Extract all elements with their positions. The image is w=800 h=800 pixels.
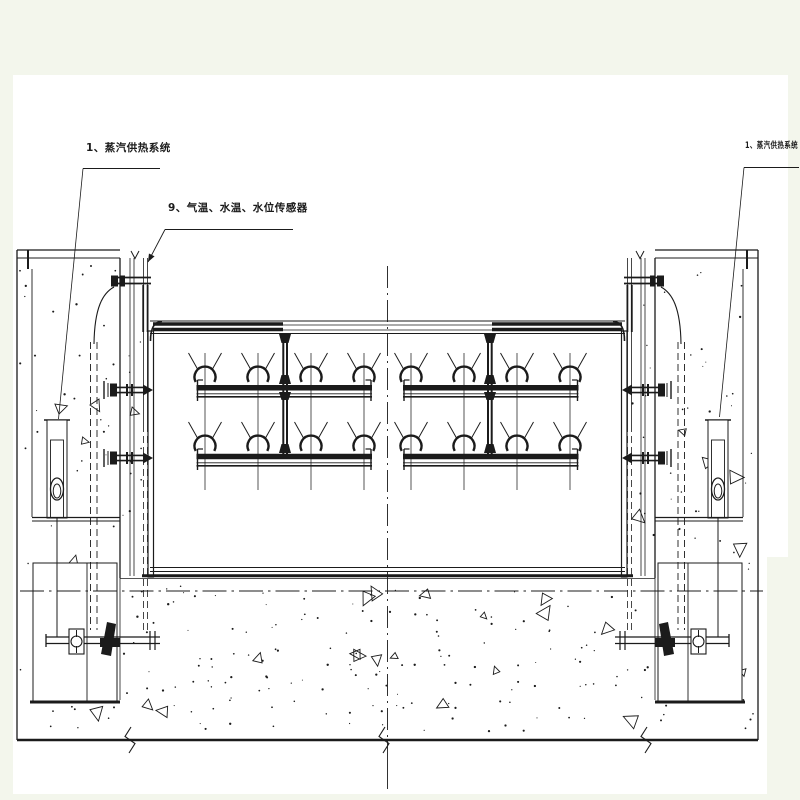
speckle-dot (534, 685, 536, 687)
speckle-dot (660, 719, 662, 721)
speckle-dot (108, 425, 109, 426)
speckle-dot (705, 362, 706, 363)
label-steam-heating-system-left: 1、蒸汽供热系统 (86, 141, 171, 154)
speckle-dot (272, 627, 273, 628)
speckle-dot (584, 718, 585, 719)
speckle-dot (414, 613, 416, 615)
speckle-dot (424, 730, 425, 731)
speckle-dot (275, 624, 276, 625)
speckle-dot (375, 673, 377, 675)
speckle-dot (381, 710, 383, 712)
speckle-dot (71, 706, 73, 708)
speckle-dot (248, 654, 249, 655)
speckle-dot (743, 699, 745, 701)
speckle-dot (100, 419, 101, 420)
speckle-dot (368, 688, 369, 689)
speckle-dot (454, 707, 456, 709)
speckle-dot (451, 717, 453, 719)
speckle-dot (401, 664, 403, 666)
speckle-dot (271, 706, 273, 708)
speckle-dot (748, 569, 749, 570)
speckle-dot (230, 697, 231, 698)
speckle-dot (52, 311, 54, 313)
speckle-dot (225, 682, 227, 684)
speckle-dot (205, 728, 207, 730)
speckle-dot (581, 647, 583, 649)
speckle-dot (702, 366, 703, 367)
speckle-dot (327, 664, 329, 666)
label-steam-heating-system-right: 1、蒸汽供热系统 (745, 140, 798, 151)
speckle-dot (81, 460, 83, 462)
speckle-dot (166, 588, 167, 589)
speckle-dot (90, 265, 92, 267)
speckle-dot (198, 665, 200, 667)
speckle-dot (140, 341, 141, 342)
speckle-dot (268, 688, 269, 689)
speckle-dot (73, 398, 75, 400)
steam-heater-cylinder (44, 420, 70, 518)
speckle-dot (303, 598, 305, 600)
speckle-dot (635, 609, 637, 611)
speckle-dot (549, 629, 551, 631)
speckle-dot (112, 363, 114, 365)
speckle-dot (162, 689, 164, 691)
speckle-dot (523, 620, 525, 622)
speckle-dot (25, 447, 27, 449)
margin-band-right-lower (767, 557, 800, 800)
speckle-dot (616, 676, 617, 677)
speckle-dot (752, 713, 754, 715)
speckle-dot (448, 655, 450, 657)
speckle-dot (682, 409, 684, 411)
speckle-dot (211, 686, 212, 687)
speckle-dot (517, 664, 519, 666)
speckle-dot (194, 595, 196, 597)
speckle-dot (444, 664, 446, 666)
speckle-dot (615, 685, 617, 687)
speckle-dot (106, 454, 107, 455)
speckle-dot (379, 671, 380, 672)
speckle-dot (266, 604, 267, 605)
speckle-dot (749, 718, 751, 720)
speckle-dot (484, 642, 485, 643)
speckle-dot (697, 274, 699, 276)
speckle-dot (643, 437, 645, 439)
speckle-dot (731, 405, 732, 406)
speckle-dot (27, 563, 28, 564)
speckle-dot (82, 274, 84, 276)
speckle-dot (719, 540, 721, 542)
speckle-dot (19, 362, 21, 364)
speckle-dot (567, 606, 569, 608)
speckle-dot (233, 653, 235, 655)
speckle-dot (726, 395, 728, 397)
speckle-dot (741, 285, 743, 287)
speckle-dot (230, 676, 232, 678)
speckle-dot (24, 296, 25, 297)
speckle-dot (212, 708, 214, 710)
speckle-dot (326, 713, 327, 714)
speckle-dot (304, 613, 306, 615)
speckle-dot (749, 563, 750, 564)
speckle-dot (74, 708, 76, 710)
speckle-dot (128, 355, 129, 356)
speckle-dot (302, 680, 303, 681)
engineering-drawing-canvas: 1、蒸汽供热系统 9、气温、水温、水位传感器 1、蒸汽供热系统 (0, 0, 800, 800)
speckle-dot (122, 515, 123, 516)
speckle-dot (414, 664, 416, 666)
speckle-dot (349, 712, 351, 714)
speckle-dot (695, 510, 697, 512)
speckle-dot (191, 711, 193, 713)
speckle-dot (173, 601, 175, 603)
speckle-dot (113, 525, 115, 527)
speckle-dot (167, 603, 169, 605)
speckle-dot (153, 622, 155, 624)
speckle-dot (126, 692, 128, 694)
speckle-dot (291, 682, 292, 683)
speckle-dot (266, 676, 268, 678)
speckle-dot (208, 680, 209, 681)
speckle-dot (25, 285, 27, 287)
speckle-dot (123, 653, 125, 655)
speckle-dot (517, 681, 519, 683)
speckle-dot (650, 367, 651, 368)
speckle-dot (140, 448, 142, 450)
speckle-dot (246, 631, 247, 632)
speckle-dot (50, 726, 52, 728)
speckle-dot (355, 674, 357, 676)
speckle-dot (575, 659, 576, 660)
speckle-dot (330, 648, 332, 650)
speckle-dot (644, 669, 646, 671)
margin-band-bottom (13, 794, 767, 800)
speckle-dot (438, 649, 440, 651)
speckle-dot (585, 684, 586, 685)
speckle-dot (670, 472, 672, 474)
speckle-dot (511, 689, 512, 690)
speckle-dot (103, 431, 105, 433)
speckle-dot (34, 355, 36, 357)
speckle-dot (558, 707, 560, 709)
speckle-dot (52, 710, 54, 712)
speckle-dot (499, 700, 501, 702)
speckle-dot (504, 724, 506, 726)
speckle-dot (349, 664, 350, 665)
speckle-dot (210, 658, 212, 660)
speckle-dot (751, 453, 752, 454)
speckle-dot (419, 597, 421, 599)
speckle-dot (199, 658, 200, 659)
speckle-dot (372, 705, 373, 706)
speckle-dot (273, 725, 275, 727)
speckle-dot (229, 723, 231, 725)
speckle-dot (700, 272, 701, 273)
speckle-dot (370, 620, 372, 622)
speckle-dot (200, 723, 201, 724)
speckle-dot (212, 666, 213, 667)
speckle-dot (187, 630, 188, 631)
speckle-dot (411, 702, 413, 704)
speckle-dot (362, 610, 364, 612)
speckle-dot (646, 345, 647, 346)
speckle-dot (681, 491, 683, 493)
speckle-dot (440, 656, 441, 657)
speckle-dot (739, 316, 741, 318)
speckle-dot (491, 616, 493, 618)
speckle-dot (132, 596, 134, 598)
speckle-dot (641, 697, 642, 698)
speckle-dot (350, 669, 351, 670)
speckle-dot (262, 592, 263, 593)
speckle-dot (232, 628, 234, 630)
speckle-dot (106, 378, 108, 380)
speckle-dot (690, 354, 691, 355)
speckle-dot (745, 483, 746, 484)
speckle-dot (275, 648, 277, 650)
speckle-dot (175, 686, 176, 687)
speckle-dot (146, 631, 148, 633)
speckle-dot (687, 407, 688, 408)
speckle-dot (215, 595, 216, 596)
speckle-dot (19, 270, 21, 272)
speckle-dot (396, 705, 397, 706)
speckle-dot (140, 479, 142, 481)
speckle-dot (594, 632, 596, 634)
speckle-dot (643, 305, 644, 306)
speckle-dot (694, 538, 695, 539)
speckle-dot (346, 632, 347, 633)
speckle-dot (352, 604, 353, 605)
speckle-dot (514, 591, 515, 592)
speckle-dot (277, 650, 279, 652)
speckle-dot (611, 596, 613, 598)
speckle-dot (732, 393, 734, 395)
speckle-dot (745, 727, 747, 729)
speckle-dot (580, 686, 581, 687)
speckle-dot (402, 707, 404, 709)
speckle-dot (579, 661, 581, 663)
speckle-dot (663, 714, 664, 715)
speckle-dot (438, 635, 440, 637)
speckle-dot (448, 703, 449, 704)
speckle-dot (523, 730, 525, 732)
speckle-dot (436, 619, 438, 621)
speckle-dot (550, 648, 551, 649)
speckle-dot (113, 706, 115, 708)
speckle-dot (258, 690, 260, 692)
speckle-dot (454, 682, 456, 684)
speckle-dot (51, 525, 52, 526)
speckle-dot (509, 701, 511, 703)
speckle-dot (294, 701, 296, 703)
speckle-dot (665, 705, 667, 707)
speckle-dot (586, 644, 587, 645)
speckle-dot (709, 410, 711, 412)
speckle-dot (36, 410, 37, 411)
speckle-dot (148, 671, 149, 672)
speckle-dot (594, 650, 595, 651)
speckle-dot (382, 724, 383, 725)
speckle-dot (701, 348, 703, 350)
speckle-dot (593, 683, 595, 685)
speckle-dot (229, 699, 231, 701)
drain-valve (69, 629, 84, 654)
speckle-dot (568, 717, 570, 719)
speckle-dot (77, 727, 78, 728)
speckle-dot (355, 653, 357, 655)
speckle-dot (647, 666, 649, 668)
speckle-dot (317, 617, 319, 619)
speckle-dot (397, 694, 398, 695)
speckle-dot (79, 355, 81, 357)
speckle-dot (389, 611, 391, 613)
speckle-dot (436, 631, 438, 633)
speckle-dot (671, 499, 672, 500)
speckle-dot (103, 325, 105, 327)
speckle-dot (192, 681, 194, 683)
margin-band-top (0, 0, 800, 75)
speckle-dot (488, 730, 490, 732)
speckle-dot (426, 614, 428, 616)
speckle-dot (733, 552, 735, 554)
speckle-dot (136, 616, 138, 618)
speckle-dot (474, 666, 476, 668)
speckle-dot (515, 629, 516, 630)
speckle-dot (77, 470, 79, 472)
speckle-dot (321, 688, 323, 690)
label-sensors: 9、气温、水温、水位传感器 (168, 201, 308, 214)
speckle-dot (698, 511, 699, 512)
speckle-dot (20, 669, 22, 671)
speckle-dot (469, 684, 471, 686)
speckle-dot (180, 586, 182, 588)
speckle-dot (301, 619, 302, 620)
speckle-dot (146, 687, 148, 689)
speckle-dot (183, 592, 184, 593)
speckle-dot (174, 705, 175, 706)
margin-band-left (0, 75, 13, 800)
speckle-dot (36, 431, 38, 433)
speckle-dot (75, 303, 77, 305)
speckle-dot (108, 717, 110, 719)
speckle-dot (63, 393, 65, 395)
speckle-dot (627, 669, 628, 670)
speckle-dot (349, 723, 350, 724)
speckle-dot (535, 662, 536, 663)
speckle-dot (475, 609, 477, 611)
speckle-dot (114, 270, 116, 272)
speckle-dot (491, 623, 493, 625)
speckle-dot (536, 717, 537, 718)
speckle-dot (664, 292, 665, 293)
speckle-dot (678, 528, 680, 530)
